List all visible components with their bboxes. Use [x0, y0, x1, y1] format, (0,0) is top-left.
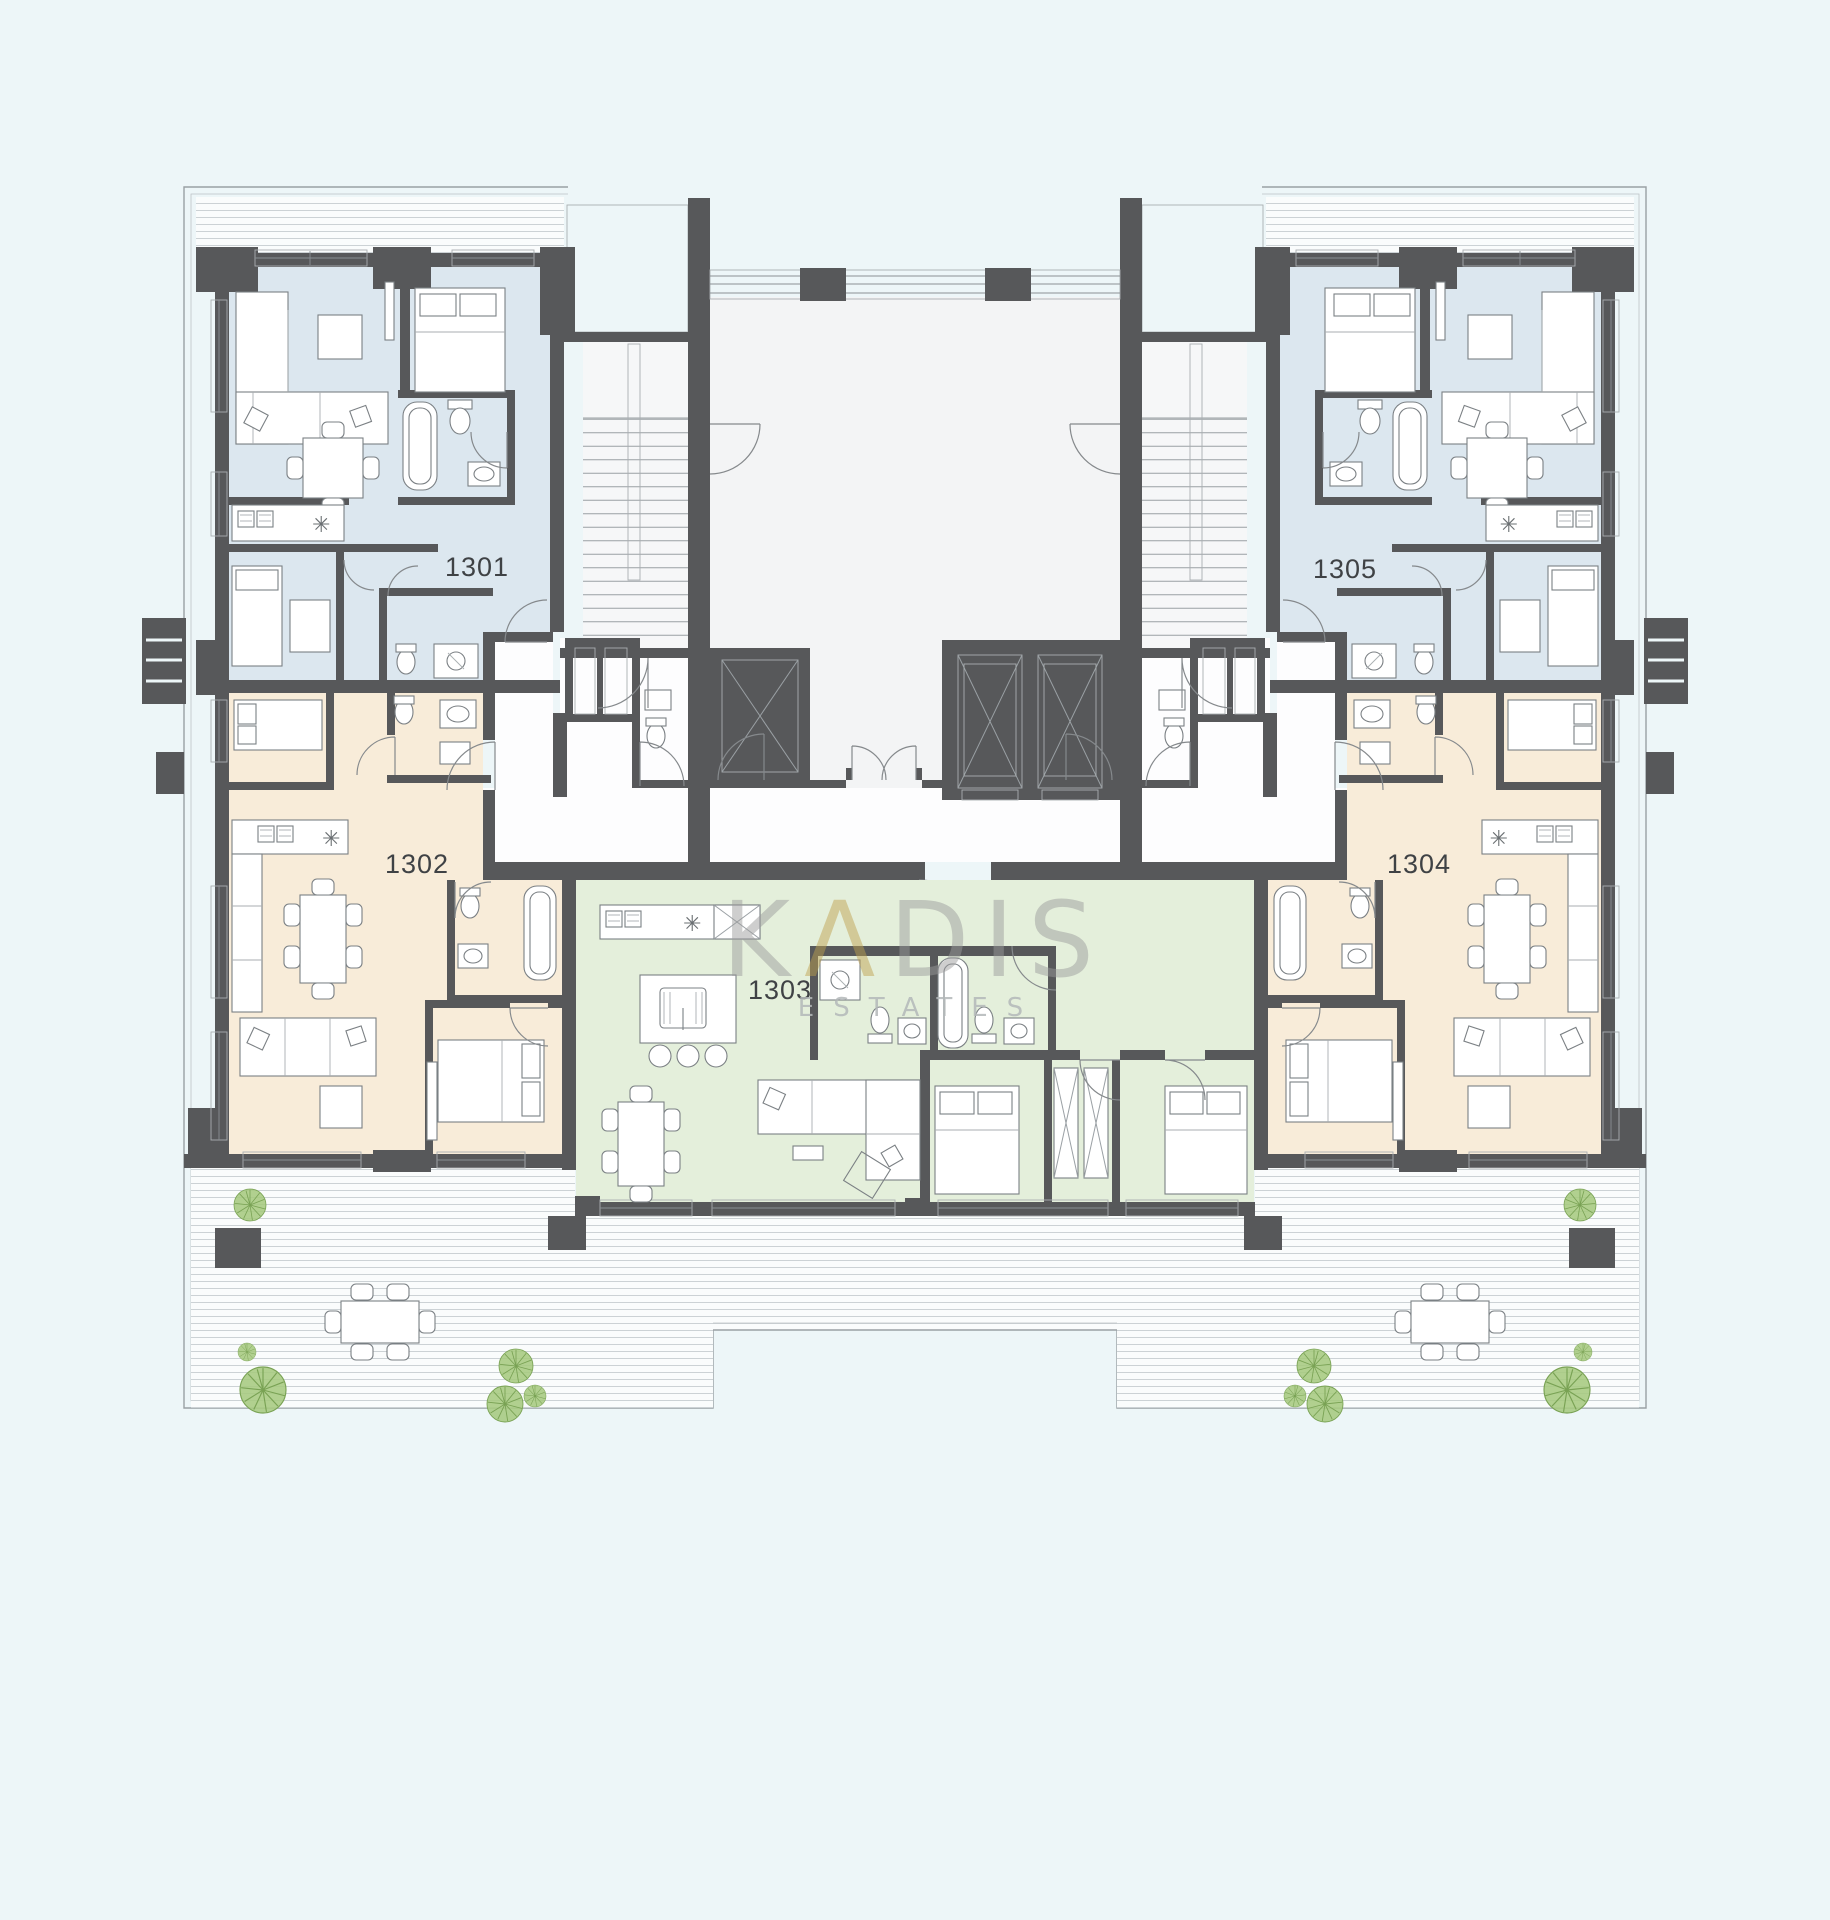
center-terrace-deck: [713, 1216, 1117, 1330]
left-wing: ✳ ✳: [142, 187, 713, 1422]
cooktop-icon: ✳: [322, 826, 340, 851]
cooktop-icon: ✳: [683, 911, 701, 936]
cooktop-icon: ✳: [312, 512, 330, 537]
watermark-subtitle: ESTATES: [798, 993, 1042, 1023]
unit-label-1301: 1301: [445, 552, 509, 582]
unit-label-1304: 1304: [1387, 849, 1451, 879]
watermark-brand: KΛDIS: [722, 879, 1108, 1001]
unit-label-1305: 1305: [1313, 554, 1377, 584]
floorplan-drawing: ✳ ✳: [0, 0, 1830, 1920]
floorplan-page: ✳ ✳: [0, 0, 1830, 1920]
roof-terrace-deck: [196, 197, 564, 253]
right-wing: [1117, 187, 1688, 1422]
unit-label-1302: 1302: [385, 849, 449, 879]
building-core: [710, 268, 1120, 952]
